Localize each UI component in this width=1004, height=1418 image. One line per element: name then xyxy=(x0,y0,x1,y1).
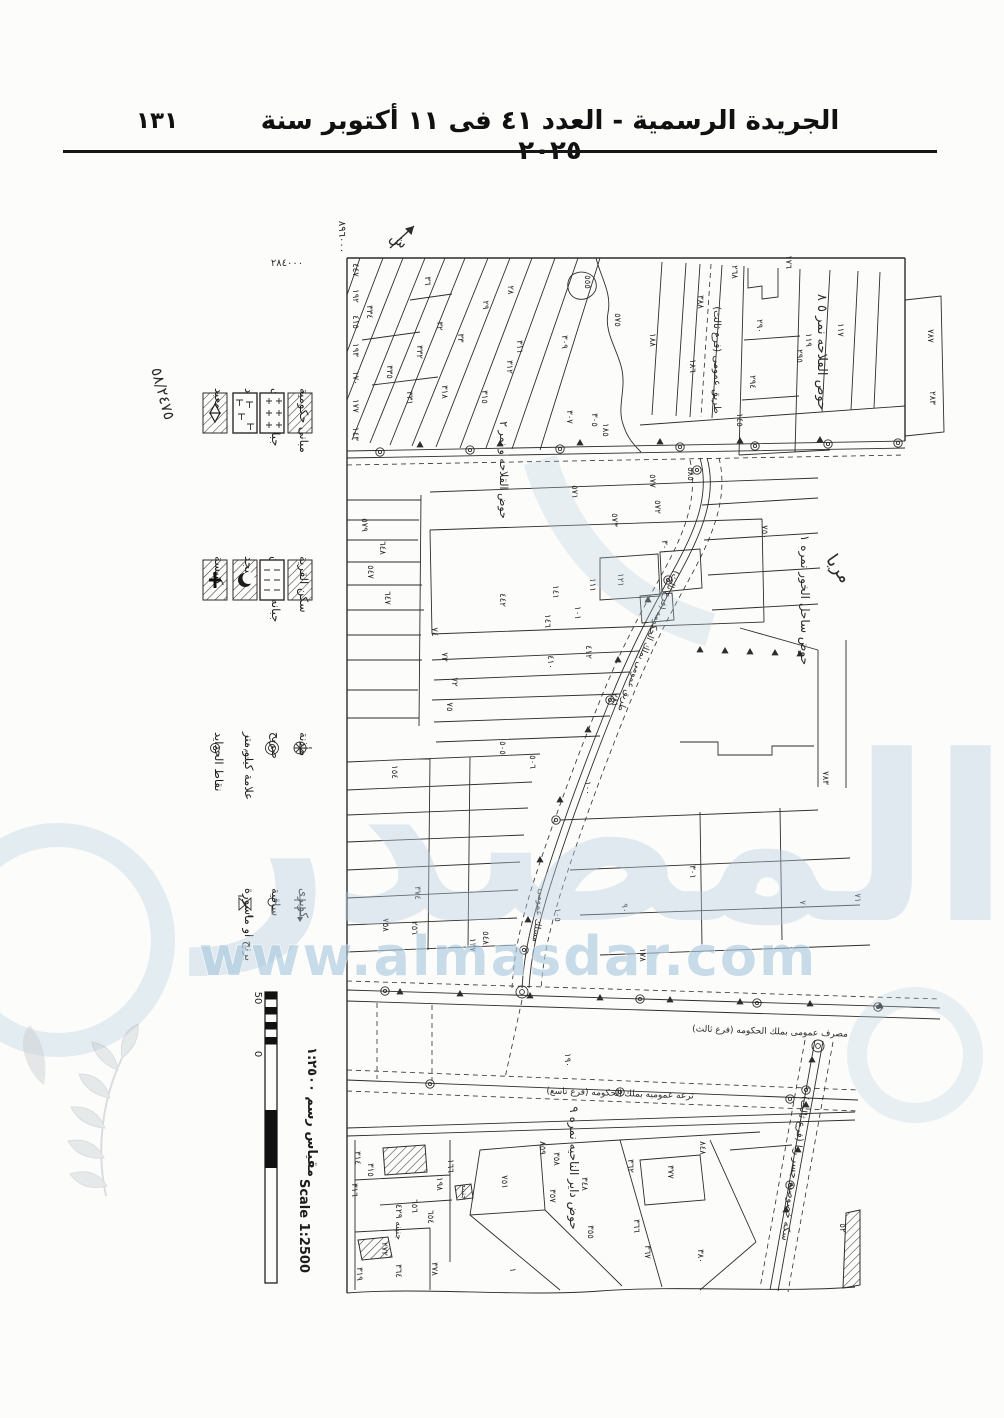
parcel-number: ٤١٢ xyxy=(583,645,593,659)
parcel-number: ٦٥٦ xyxy=(409,1199,419,1213)
parcel-number: ٣٧٤ xyxy=(412,886,422,900)
legend-swatch-christian-cemetery xyxy=(260,393,284,433)
legend-swatch-muslim-cemetery xyxy=(260,560,284,600)
parcel-number: ٣٠١ xyxy=(687,865,697,879)
parcel-number: ١٨٦ xyxy=(687,359,697,373)
scale-bar: 50 0 مقياس رسم ١:٢٥٠٠ Scale 1:2500 xyxy=(252,992,319,1283)
kilometre-mark-icons xyxy=(376,439,902,1189)
parcel-number: ٣٠٧ xyxy=(564,410,574,424)
parcel-number: ٣١٤ xyxy=(352,1151,362,1165)
scale-tick-0: 0 xyxy=(252,1051,263,1057)
map-annotation: مسلك عمومى xyxy=(530,888,547,943)
parcel-number: ٦٥٤ xyxy=(425,1210,435,1224)
parcel-number: ٥٧١ xyxy=(569,485,579,499)
legend-label: برنج او ماسورة xyxy=(241,888,256,961)
parcel-number: ٣١٨ xyxy=(439,385,449,399)
parcel-number: ١٢١ xyxy=(615,573,625,587)
watermark-curve xyxy=(540,460,710,630)
parcel-number: ٦٤٨ xyxy=(377,541,387,555)
map-annotation: ترعه عموميه بملك الحكومه (فرع تاسع) xyxy=(546,1086,694,1101)
watermark-url: www.almasdar.com xyxy=(199,925,817,988)
parcel-number: ٥٧٢ xyxy=(652,500,662,514)
parcel-number: ١٠٠ xyxy=(582,781,592,795)
parcel-number: ١٤٣ xyxy=(350,427,360,441)
parcel-number: ٢٥٦ xyxy=(409,921,419,935)
church-building-hatch xyxy=(383,1145,427,1175)
map-annotation: حوض القلاحه و نمر ٢ xyxy=(497,421,510,519)
parcel-number: ١٤٥ xyxy=(734,413,744,427)
parcel-number: ٣١٥ xyxy=(479,390,489,404)
parcel-number: ٣٣٢ xyxy=(414,345,424,359)
parcel-number: ٣٢ xyxy=(434,321,444,331)
parcel-number: ٣٦٢ xyxy=(625,1159,635,1173)
parcel-number: ٣٨٠ xyxy=(695,1249,705,1263)
parcel-number: ٧٥ xyxy=(444,702,454,711)
parcel-number: ٣٣١ xyxy=(404,391,414,405)
legend-swatch-church xyxy=(203,560,227,600)
parcel-number: ٧٥٠ xyxy=(759,525,769,539)
parcel-number: ٢٨ xyxy=(505,285,515,295)
parcel-number: ٥٤٧ xyxy=(365,565,375,579)
map-annotation: سكه خصوصيه جسر ريا (فرع ثالث) xyxy=(779,1095,810,1241)
map-annotation: مصرف عمومى بملك الحكومه (فرع ثالث) xyxy=(692,1024,848,1039)
parcel-number: ٩٠ xyxy=(619,903,629,912)
map-linework xyxy=(347,226,944,1293)
parcel-number: ٥٠٦ xyxy=(527,755,537,769)
parcel-number: ٣٠٩ xyxy=(559,335,569,349)
parcel-number: ٣١٦ xyxy=(349,1183,359,1197)
parcel-number: ٣٠٠ xyxy=(659,540,669,554)
watermark-swirl xyxy=(857,997,973,1113)
parcel-number: ٥٨٥ xyxy=(685,467,695,481)
parcel-number: ٧٣ xyxy=(439,652,449,662)
grey-blob xyxy=(23,1025,46,1085)
parcel-number: ٣٣٥ xyxy=(384,365,394,379)
parcel-number: ٢٨٣ xyxy=(927,391,937,405)
minaret-symbol-icon xyxy=(294,742,306,754)
watermark-circle xyxy=(0,835,163,1045)
parcel-number: ٥٠٥ xyxy=(497,741,507,755)
parcel-number: ٣٥٥ xyxy=(585,1225,595,1239)
parcel-number: ١٤٦ xyxy=(542,614,552,628)
parcel-number: ٣٠٥ xyxy=(589,413,599,427)
parcel-number: ٣١١ xyxy=(514,340,524,354)
legend-label: نقاط الحدايد xyxy=(212,732,226,791)
parcel-number: ٧٠ xyxy=(797,900,807,909)
map-annotation: جنينه ٤٢٩ xyxy=(393,1204,403,1240)
map-annotation: حوض ساحل الخور نمره ١ xyxy=(797,535,812,665)
parcel-number: ١٦٦ xyxy=(445,1159,455,1173)
map-annotation: ٢٨٤٠٠٠ xyxy=(271,258,303,269)
parcel-number: ١١١ xyxy=(587,578,597,592)
map-annotation: مريا xyxy=(821,551,855,588)
parcel-number: ١٥٤ xyxy=(389,765,399,779)
parcel-number: ١٩٨ xyxy=(434,1177,444,1191)
parcel-number: ٧٢ xyxy=(449,677,459,687)
parcel-number: ٨٥٩ xyxy=(537,1141,547,1155)
legend: مبانى حكومية جبانه نصارى جبانه يهود معبد… xyxy=(203,388,312,961)
legend-swatch-jewish-cemetery xyxy=(233,393,257,433)
parcel-number: ١٧٧ xyxy=(350,399,360,413)
parcel-number: ٤١٥ xyxy=(350,315,360,329)
parcel-number: ٢٦٨ xyxy=(729,265,739,279)
parcel-number: ٣١٩ xyxy=(354,1267,364,1281)
parcel-number: ١٨٨ xyxy=(647,333,657,347)
map-annotation: جنينه xyxy=(460,1184,469,1201)
parcel-number: ٧٤ xyxy=(429,627,439,636)
parcel-number: ١١٩ xyxy=(803,333,813,347)
map-annotation: طريق عمومى بملك الحكومه (فرع ثالث) xyxy=(615,569,681,713)
parcel-number: ٣٣ xyxy=(455,333,465,343)
parcel-number: ٣٦٤ xyxy=(393,1264,403,1278)
parcel-number: ٤٤٢ xyxy=(497,593,507,607)
scale-text-english: Scale 1:2500 xyxy=(296,1179,311,1273)
legend-swatch-temple xyxy=(203,393,227,433)
legend-swatch-government xyxy=(288,393,312,433)
kilometre-symbol-icon: ك.م ١٠٤ xyxy=(243,735,251,761)
parcel-number: ١٩٢ xyxy=(350,289,360,303)
legend-swatch-village xyxy=(288,560,312,600)
parcel-number: ٥٧٩ xyxy=(359,518,369,532)
legend-label: كوبرى xyxy=(296,888,311,918)
parcel-number: ٣٧٨ xyxy=(429,1262,439,1276)
parcel-number: ١٧٨ xyxy=(637,948,647,962)
parcel-number: ٣٦٧ xyxy=(642,1245,652,1259)
scale-text-arabic: مقياس رسم ١:٢٥٠٠ xyxy=(304,1047,319,1177)
map-annotation: طريق عمومى (فرع ثالث) xyxy=(711,306,722,414)
parcel-number: ٧٨٧ xyxy=(925,329,935,343)
parcel-number: ٢٩٥ xyxy=(794,349,804,363)
parcel-number: ٣٣٤ xyxy=(364,305,374,319)
map-annotation: حوض القلاحه نمر ٥ ٨ xyxy=(814,294,829,410)
parcel-number: ١٨٥ xyxy=(600,423,610,437)
parcel-number: ٣٧٧ xyxy=(665,1165,675,1179)
parcel-number: ١ xyxy=(507,1268,517,1273)
parcel-number: ٣٦ xyxy=(422,276,432,286)
parcel-number: ٣١٥ xyxy=(365,1163,375,1177)
parcel-number: ٢٧٢ xyxy=(379,1242,389,1256)
parcel-number: ١٧٠ xyxy=(350,371,360,385)
parcel-number: ٥٤٨ xyxy=(480,931,490,945)
gazette-page: { "header": { "page_number": "١٣١", "tit… xyxy=(0,0,1004,1418)
parcel-number: ٨٤٨ xyxy=(697,1141,707,1155)
legend-swatch-mosque xyxy=(233,560,257,600)
scale-tick-50: 50 xyxy=(252,992,263,1005)
parcel-number: ١٩٠ xyxy=(562,1053,572,1067)
parcel-number: ٣٨٨ xyxy=(695,295,705,309)
corner-hatch xyxy=(843,1210,860,1288)
parcel-number: ٦٤٧ xyxy=(382,591,392,605)
parcel-number: ١٠٥ xyxy=(552,908,562,922)
svg-text:ك.م ١٠٤: ك.م ١٠٤ xyxy=(243,735,251,761)
parcel-number: ١٣٧ xyxy=(467,938,477,952)
parcel-number: ٥٧٣ xyxy=(609,513,619,527)
parcel-number: ٧٨٣ xyxy=(820,771,830,785)
parcel-number: ٥٢ xyxy=(837,1223,847,1233)
parcel-number: ٣٥٧ xyxy=(547,1189,557,1203)
parcel-number: ١٧٦ xyxy=(783,255,793,269)
map-annotation: حوض داير الناحيه نمره ٩ xyxy=(566,1106,581,1229)
parcel-number: ٧١ xyxy=(852,893,862,902)
parcel-number: ٢٩٤ xyxy=(747,375,757,389)
parcel-number: ٧٥٨ xyxy=(380,918,390,932)
parcel-number: ٧٥١ xyxy=(499,1175,509,1189)
parcel-number: ١١٧ xyxy=(835,323,845,337)
parcel-number: ١٩٣ xyxy=(350,343,360,357)
parcel-number: ١٤١ xyxy=(550,585,560,599)
map-annotation: ٥٨/٢٤٧٥ xyxy=(147,366,178,422)
laurel-emblem-icon xyxy=(68,1024,138,1196)
parcel-number: ٣١٢ xyxy=(504,360,514,374)
parcel-number: ٤١٠ xyxy=(545,655,555,669)
parcel-number: ٣٥٨ xyxy=(551,1152,561,1166)
parcel-number: ٢٩٠ xyxy=(754,319,764,333)
parcel-number: ٥٧٥ xyxy=(612,313,622,327)
map-sheet: مبانى حكومية جبانه نصارى جبانه يهود معبد… xyxy=(0,0,1004,1418)
parcel-labels: ٤٤٧١٩٢٤١٥١٩٣١٧٠١٧٧١٤٣٣٣٤٣٣٥٣٦٣٢٣٣٣٣٢٣٣١٣… xyxy=(349,255,937,1281)
parcel-number: ٥٥٥ xyxy=(582,275,592,289)
map-annotation: ٨٩٦٠٠٠ xyxy=(336,221,347,253)
parcel-number: ٥٧٧ xyxy=(647,474,657,488)
parcel-number: ٢٩ xyxy=(480,300,490,310)
parcel-number: ٣٦٦ xyxy=(631,1219,641,1233)
parcel-number: ١٠١ xyxy=(572,606,582,620)
parcel-number: ٤٤٧ xyxy=(350,263,360,277)
